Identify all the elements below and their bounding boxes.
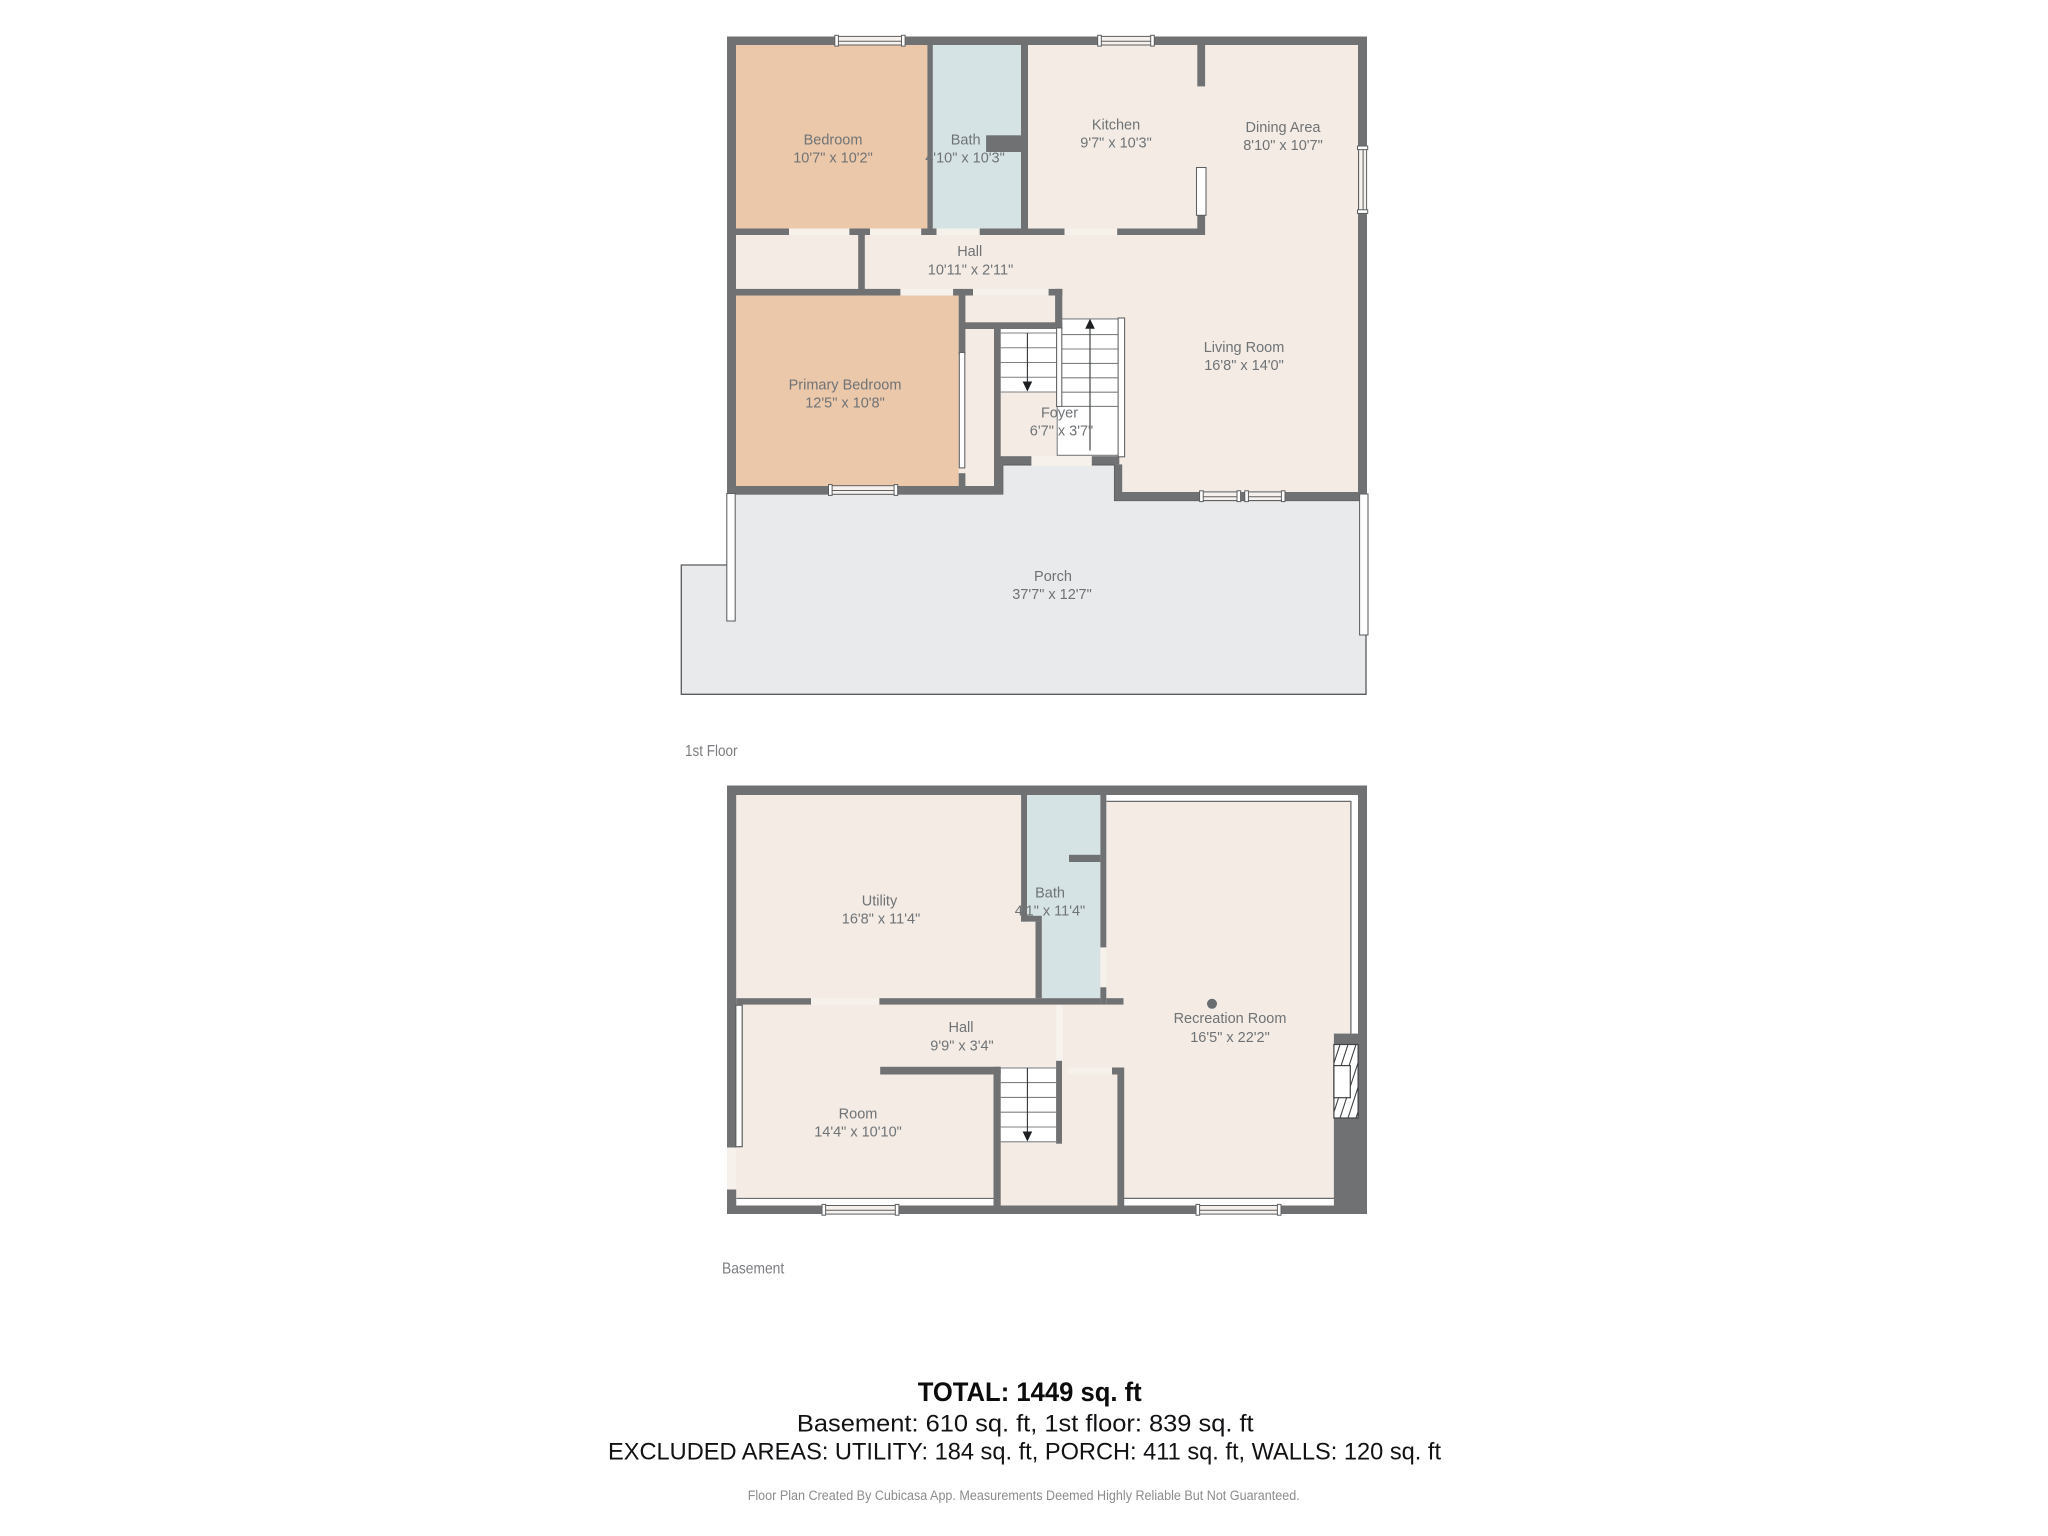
svg-text:EXCLUDED AREAS: UTILITY: 184 s: EXCLUDED AREAS: UTILITY: 184 sq. ft, POR… [608, 1438, 1441, 1465]
svg-text:Recreation Room: Recreation Room [1174, 1011, 1287, 1027]
svg-text:Kitchen: Kitchen [1092, 118, 1140, 134]
svg-text:Room: Room [839, 1107, 878, 1123]
svg-text:Bath: Bath [1035, 886, 1065, 902]
svg-text:10'11" x 2'11": 10'11" x 2'11" [928, 263, 1013, 279]
svg-text:9'9" x 3'4": 9'9" x 3'4" [930, 1039, 993, 1055]
svg-text:8'10" x 10'7": 8'10" x 10'7" [1243, 138, 1323, 154]
svg-text:16'5" x 22'2": 16'5" x 22'2" [1190, 1030, 1270, 1046]
svg-text:Bath: Bath [951, 133, 981, 149]
svg-text:37'7" x 12'7": 37'7" x 12'7" [1012, 587, 1092, 603]
svg-text:Hall: Hall [957, 244, 982, 260]
svg-text:16'8" x 14'0": 16'8" x 14'0" [1204, 358, 1284, 374]
svg-text:Hall: Hall [949, 1020, 974, 1036]
svg-text:Floor Plan Created By Cubicasa: Floor Plan Created By Cubicasa App. Meas… [748, 1488, 1300, 1503]
svg-text:4'10" x 10'3": 4'10" x 10'3" [925, 151, 1005, 167]
svg-text:Basement: Basement [722, 1261, 785, 1278]
svg-text:16'8" x 11'4": 16'8" x 11'4" [842, 912, 920, 928]
svg-text:Living Room: Living Room [1204, 340, 1285, 356]
svg-text:9'7" x 10'3": 9'7" x 10'3" [1080, 136, 1151, 152]
svg-text:Dining Area: Dining Area [1246, 120, 1322, 136]
svg-text:Porch: Porch [1034, 569, 1072, 585]
svg-text:Bedroom: Bedroom [804, 133, 863, 149]
svg-text:TOTAL: 1449 sq. ft: TOTAL: 1449 sq. ft [918, 1377, 1142, 1407]
svg-text:10'7" x 10'2": 10'7" x 10'2" [793, 151, 873, 167]
svg-text:12'5" x 10'8": 12'5" x 10'8" [805, 396, 885, 412]
svg-text:Basement: 610 sq. ft, 1st floo: Basement: 610 sq. ft, 1st floor: 839 sq.… [797, 1410, 1254, 1437]
svg-text:Utility: Utility [862, 894, 898, 910]
svg-text:14'4" x 10'10": 14'4" x 10'10" [814, 1125, 902, 1141]
svg-text:Primary Bedroom: Primary Bedroom [789, 378, 902, 394]
svg-text:1st Floor: 1st Floor [685, 743, 738, 760]
svg-text:Foyer: Foyer [1041, 406, 1078, 422]
svg-text:6'7" x 3'7": 6'7" x 3'7" [1030, 424, 1093, 440]
